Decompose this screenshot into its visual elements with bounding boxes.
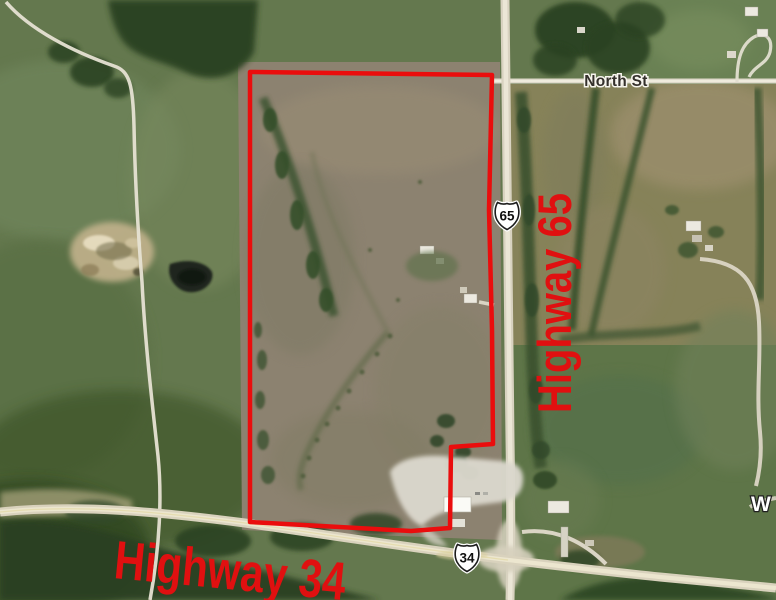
highway-65-label: Highway 65 — [528, 193, 581, 413]
north-st-label: North St — [584, 73, 648, 90]
satellite-map: North St 65 34 Highway 65 Highway 34 W — [0, 0, 776, 600]
us-route-65-shield: 65 — [495, 203, 519, 230]
aerial-property-map: North St 65 34 Highway 65 Highway 34 W — [0, 0, 776, 600]
us-route-34-shield: 34 — [455, 545, 479, 572]
shield-number-34: 34 — [459, 551, 475, 566]
shield-number-65: 65 — [499, 209, 515, 224]
partial-street-label-w: W — [751, 493, 771, 516]
